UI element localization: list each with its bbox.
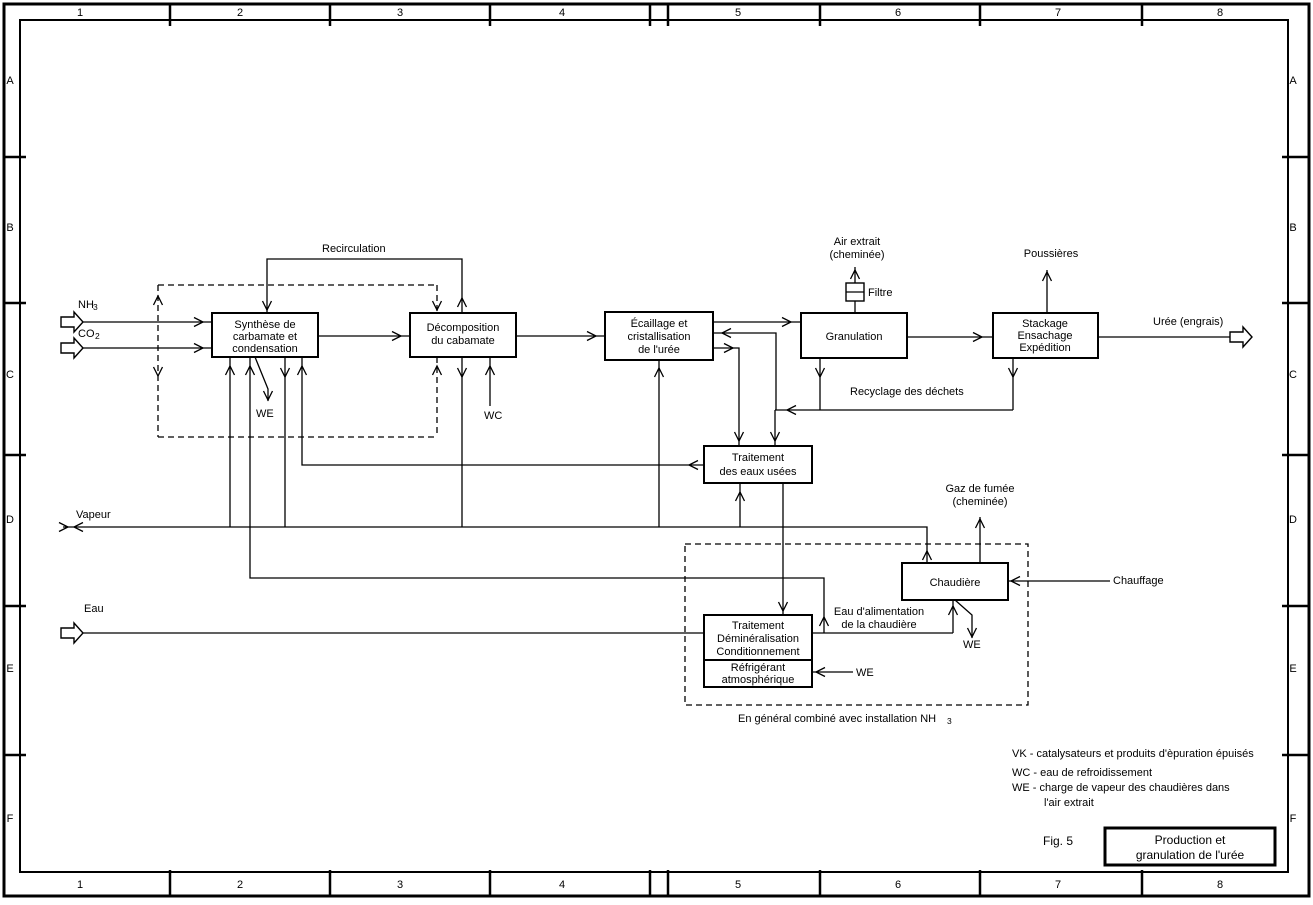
col-label: 5 — [735, 879, 741, 891]
col-label: 3 — [397, 879, 403, 891]
nh3-subscript: 3 — [93, 302, 98, 312]
row-label: D — [6, 514, 14, 526]
col-label: 2 — [237, 879, 243, 891]
co2-subscript: 2 — [95, 331, 100, 341]
inner-border — [20, 20, 1288, 872]
row-label: E — [1289, 663, 1296, 675]
air-extrait-label: Air extrait — [834, 236, 880, 248]
gaz-fumee-label: Gaz de fumée — [945, 483, 1014, 495]
box-chaudiere: Chaudière — [902, 563, 1008, 600]
border-frame: 1 2 3 4 5 6 7 8 1 2 3 4 5 6 7 8 A B C D … — [4, 4, 1309, 896]
row-ticks — [4, 157, 1308, 755]
box-demineralisation-label: Traitement — [732, 620, 784, 632]
col-label: 6 — [895, 879, 901, 891]
air-extrait-label: (cheminée) — [829, 249, 884, 261]
col-label: 7 — [1055, 879, 1061, 891]
col-label: 2 — [237, 7, 243, 19]
box-synthese: Synthèse de carbamate et condensation — [212, 313, 318, 357]
legend: VK - catalysateurs et produits d'èpurati… — [1012, 748, 1254, 809]
col-label: 1 — [77, 879, 83, 891]
we-chaudiere-label: WE — [963, 639, 981, 651]
filtre-label: Filtre — [868, 287, 892, 299]
box-ecaillage-label: de l'urée — [638, 344, 680, 356]
row-label: C — [1289, 369, 1297, 381]
box-synthese-label: carbamate et — [233, 331, 297, 343]
legend-line: WC - eau de refroidissement — [1012, 767, 1152, 779]
box-traitement-eaux-label: des eaux usées — [719, 466, 797, 478]
uree-output-arrow-icon — [1230, 327, 1252, 347]
row-label: A — [1289, 75, 1297, 87]
chauffage-label: Chauffage — [1113, 575, 1164, 587]
box-stackage-label: Ensachage — [1017, 330, 1072, 342]
urea-process-flow-diagram: 1 2 3 4 5 6 7 8 1 2 3 4 5 6 7 8 A B C D … — [0, 0, 1313, 900]
we-refrigerant-label: WE — [856, 667, 874, 679]
col-label: 7 — [1055, 7, 1061, 19]
dashed-boundary-recirculation — [158, 285, 437, 437]
col-label: 6 — [895, 7, 901, 19]
box-stackage-label: Expédition — [1019, 342, 1070, 354]
row-label: B — [6, 222, 13, 234]
row-label: E — [6, 663, 13, 675]
box-decomposition-label: Décomposition — [427, 322, 500, 334]
recirculation-label: Recirculation — [322, 243, 386, 255]
row-label: B — [1289, 222, 1296, 234]
col-label: 3 — [397, 7, 403, 19]
box-stackage: Stackage Ensachage Expédition — [993, 313, 1098, 358]
col-label: 5 — [735, 7, 741, 19]
box-ecaillage-label: cristallisation — [628, 331, 691, 343]
recyclage-label: Recyclage des déchets — [850, 386, 964, 398]
row-labels-left: A B C D E F — [6, 75, 14, 825]
box-demineralisation-label: Conditionnement — [716, 646, 799, 658]
wc-label: WC — [484, 410, 502, 422]
col-label: 4 — [559, 879, 565, 891]
row-label: C — [6, 369, 14, 381]
note-nh3-subscript: 3 — [947, 716, 952, 726]
box-decomposition: Décomposition du cabamate — [410, 313, 516, 357]
col-label: 1 — [77, 7, 83, 19]
gaz-fumee-label: (cheminée) — [952, 496, 1007, 508]
box-granulation-label: Granulation — [826, 331, 883, 343]
uree-label: Urée (engrais) — [1153, 316, 1223, 328]
box-demineralisation-label: Déminéralisation — [717, 633, 799, 645]
poussieres-label: Poussières — [1024, 248, 1079, 260]
drawing-title: Production et — [1155, 833, 1226, 847]
eau-label: Eau — [84, 603, 104, 615]
filtre-symbol: Filtre — [846, 283, 892, 301]
box-traitement-eaux: Traitement des eaux usées — [704, 446, 812, 483]
we-synthese-label: WE — [256, 408, 274, 420]
legend-line: l'air extrait — [1044, 797, 1094, 809]
box-granulation: Granulation — [801, 313, 907, 358]
col-label: 8 — [1217, 879, 1223, 891]
nh3-label: NH — [78, 299, 94, 311]
outer-border — [4, 4, 1309, 896]
box-traitement-eaux-label: Traitement — [732, 452, 784, 464]
box-ecaillage: Écaillage et cristallisation de l'urée — [605, 312, 713, 360]
box-synthese-label: condensation — [232, 343, 297, 355]
box-refrigerant-label: atmosphérique — [722, 674, 795, 686]
eau-input-arrow-icon — [61, 623, 83, 643]
legend-line: WE - charge de vapeur des chaudières dan… — [1012, 782, 1230, 794]
title-block: Fig. 5 Production et granulation de l'ur… — [1043, 828, 1275, 865]
vapeur-label: Vapeur — [76, 509, 111, 521]
box-stackage-label: Stackage — [1022, 318, 1068, 330]
row-labels-right: A B C D E F — [1289, 75, 1297, 825]
drawing-sheet: 1 2 3 4 5 6 7 8 1 2 3 4 5 6 7 8 A B C D … — [0, 0, 1313, 900]
col-label: 8 — [1217, 7, 1223, 19]
col-label: 4 — [559, 7, 565, 19]
figure-number: Fig. 5 — [1043, 834, 1073, 848]
box-refrigerant-label: Réfrigérant — [731, 662, 785, 674]
drawing-title: granulation de l'urée — [1136, 848, 1245, 862]
box-ecaillage-label: Écaillage et — [631, 317, 688, 330]
co2-label: CO — [78, 328, 95, 340]
box-decomposition-label: du cabamate — [431, 335, 495, 347]
legend-line: VK - catalysateurs et produits d'èpurati… — [1012, 748, 1254, 760]
row-label: D — [1289, 514, 1297, 526]
eau-alimentation-label: Eau d'alimentation — [834, 606, 924, 618]
eau-alimentation-label: de la chaudière — [841, 619, 916, 631]
row-label: F — [1290, 813, 1297, 825]
row-label: F — [7, 813, 14, 825]
box-synthese-label: Synthèse de — [234, 319, 295, 331]
box-demineralisation: Traitement Déminéralisation Conditionnem… — [704, 615, 812, 687]
column-ticks — [170, 4, 1142, 896]
box-chaudiere-label: Chaudière — [930, 577, 981, 589]
note-nh3-label: En général combiné avec installation NH — [738, 713, 936, 725]
row-label: A — [6, 75, 14, 87]
co2-input-arrow-icon — [61, 338, 83, 358]
